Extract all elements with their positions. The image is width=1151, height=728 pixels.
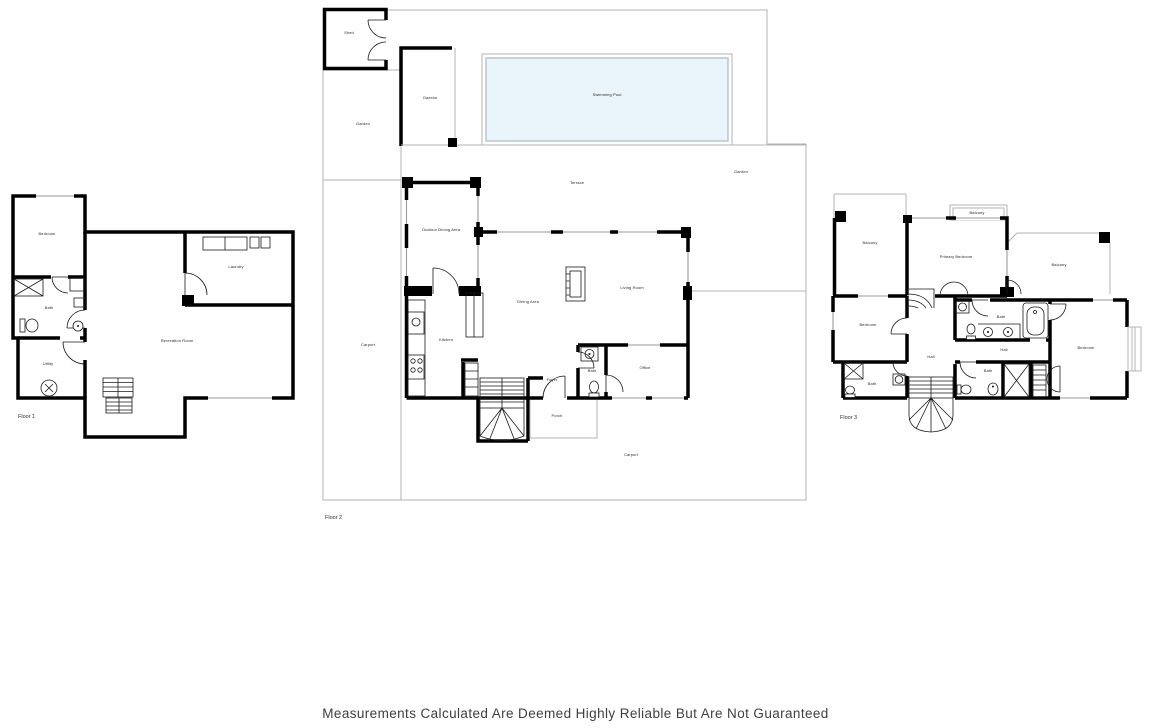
floor3-plan: Balcony Balcony Primary Bedroom Balcony …: [828, 188, 1151, 444]
disclaimer-text: Measurements Calculated Are Deemed Highl…: [0, 706, 1151, 721]
room-label-garden-right: Garden: [734, 170, 748, 174]
room-label-terrace: Terrace: [570, 181, 584, 185]
room-label-balcony-left: Balcony: [863, 241, 878, 245]
room-label-carport-left: Carport: [361, 343, 375, 347]
room-label-hall-center: Hall: [1000, 348, 1007, 352]
floorplan-canvas: Bedroom Bath Utility Laundry Recreation …: [0, 0, 1151, 728]
floor1-plan: Bedroom Bath Utility Laundry Recreation …: [0, 185, 300, 450]
floor1-closet-icon: [14, 279, 43, 296]
room-label-bedroom-left: Bedroom: [860, 323, 877, 327]
room-label-office: Office: [640, 366, 651, 370]
room-label-dining-area: Dining Area: [517, 300, 539, 304]
floor1-windows: [36, 196, 272, 398]
room-label-foyer: Foyer: [547, 378, 558, 382]
room-label-carport-right: Carport: [624, 453, 638, 457]
room-label-laundry: Laundry: [228, 265, 243, 269]
kitchen-island: [566, 267, 585, 301]
floor3-windows: [833, 218, 1113, 398]
floor3-drawing: [828, 188, 1151, 444]
swimming-pool-shape: [482, 54, 732, 145]
room-label-bedroom: Bedroom: [39, 232, 56, 236]
room-label-bath-bottom-center: Bath: [984, 369, 993, 373]
floor1-label: Floor 1: [18, 414, 35, 420]
floor2-drawing: [320, 0, 810, 530]
room-label-bedroom-right: Bedroom: [1078, 346, 1095, 350]
room-label-bath: Bath: [45, 306, 54, 310]
room-label-balcony-top: Balcony: [970, 211, 985, 215]
room-label-bath-floor2: Bath: [588, 369, 597, 373]
room-label-hall-left: Hall: [927, 355, 934, 359]
shed-structure: [325, 10, 387, 69]
floor1-laundry-counter: [203, 237, 270, 250]
room-label-utility: Utility: [43, 362, 53, 366]
floor3-bath-center-fixtures: [956, 301, 1048, 340]
floor3-stairs: [908, 289, 953, 432]
floor3-bay-window: [1128, 327, 1141, 371]
room-label-bath-bottom-left: Bath: [868, 382, 877, 386]
room-label-balcony-right: Balcony: [1052, 263, 1067, 267]
room-label-shed: Shed: [344, 31, 354, 35]
room-label-primary-bedroom: Primary Bedroom: [940, 255, 973, 259]
porch-outline: [530, 400, 597, 438]
floor2-label: Floor 2: [325, 515, 342, 521]
floor1-stairs: [103, 378, 133, 413]
room-label-outdoor-dining-area: Outdoor Dining Area: [422, 228, 460, 232]
room-label-kitchen: Kitchen: [439, 338, 453, 342]
room-label-swimming-pool: Swimming Pool: [593, 93, 622, 97]
room-label-gazebo: Gazebo: [423, 96, 438, 100]
floor1-water-heater-icon: [41, 380, 57, 396]
floor1-doors: [52, 273, 207, 364]
room-label-living-room: Living Room: [620, 286, 643, 290]
kitchen-fixtures: [408, 293, 483, 396]
floor3-label: Floor 3: [840, 415, 857, 421]
floor2-stairs: [480, 378, 524, 441]
floor3-bath-bottom-fixtures: [957, 383, 998, 395]
room-label-bath-center: Bath: [997, 315, 1006, 319]
room-label-garden-left: Garden: [356, 122, 370, 126]
floor2-plan: Shed Gazebo Garden Swimming Pool Terrace…: [320, 0, 810, 530]
floor1-drawing: [0, 185, 300, 450]
room-label-recreation-room: Recreation Room: [161, 339, 194, 343]
room-label-porch: Porch: [552, 414, 563, 418]
floor3-closets: [1004, 364, 1046, 397]
floor2-house-walls: [402, 177, 692, 441]
